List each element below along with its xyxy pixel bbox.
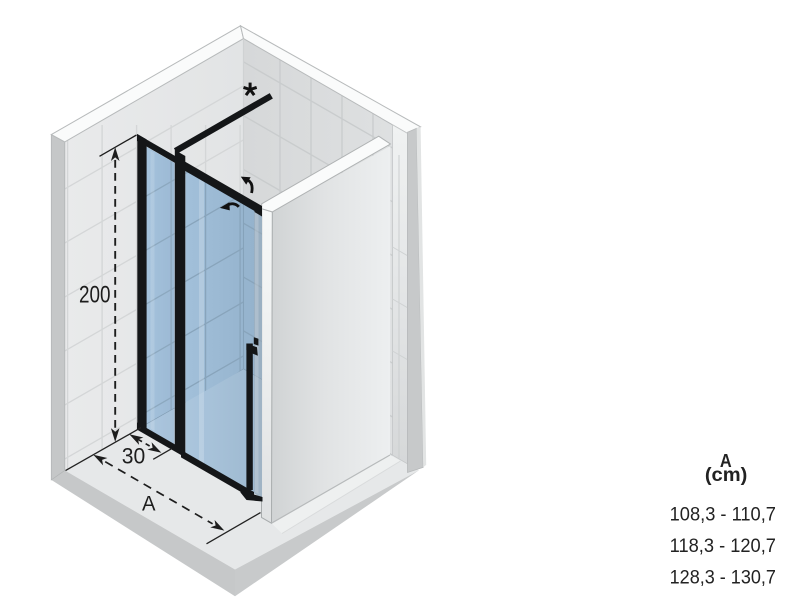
svg-text:118,3 - 120,7: 118,3 - 120,7	[670, 535, 776, 557]
svg-text:A: A	[142, 492, 156, 516]
svg-text:108,3 - 110,7: 108,3 - 110,7	[670, 504, 776, 526]
svg-text:30: 30	[122, 444, 146, 469]
svg-text:200: 200	[79, 282, 111, 309]
svg-text:(cm): (cm)	[705, 465, 748, 486]
svg-text:128,3 - 130,7: 128,3 - 130,7	[670, 566, 776, 588]
